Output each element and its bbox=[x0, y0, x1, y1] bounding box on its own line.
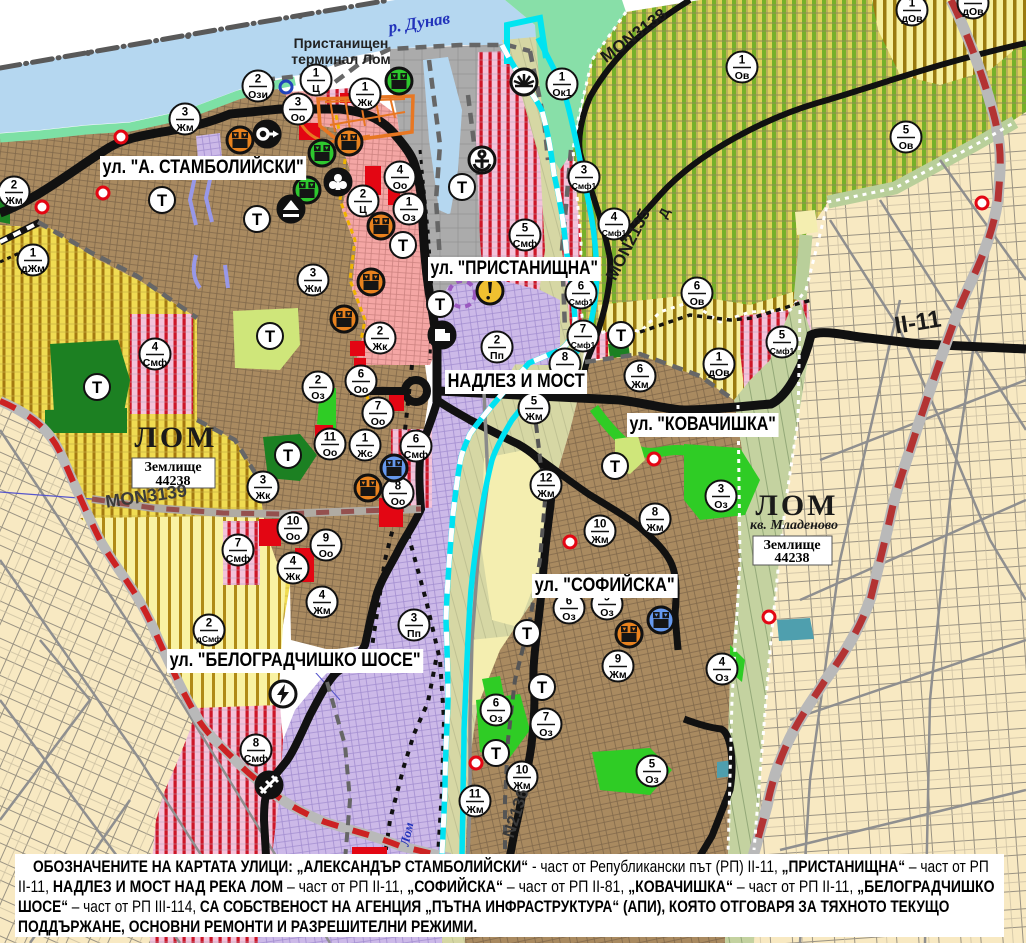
svg-text:10: 10 bbox=[516, 765, 529, 777]
svg-text:3: 3 bbox=[310, 268, 316, 280]
svg-text:7: 7 bbox=[543, 712, 549, 724]
svg-text:терминал Лом: терминал Лом bbox=[291, 51, 391, 67]
svg-text:дОв: дОв bbox=[901, 13, 923, 25]
svg-text:5: 5 bbox=[903, 125, 910, 137]
svg-text:5: 5 bbox=[779, 330, 786, 342]
svg-text:Жм: Жм bbox=[608, 669, 626, 681]
svg-text:2: 2 bbox=[377, 326, 383, 338]
svg-text:Оо: Оо bbox=[291, 112, 306, 124]
svg-text:Оо: Оо bbox=[323, 447, 338, 459]
svg-text:Оо: Оо bbox=[391, 496, 406, 508]
svg-text:ЛОМ: ЛОМ bbox=[134, 421, 217, 454]
svg-text:1: 1 bbox=[559, 72, 566, 84]
svg-text:Жс: Жс bbox=[356, 448, 372, 460]
svg-text:3: 3 bbox=[718, 484, 724, 496]
svg-text:10: 10 bbox=[287, 516, 300, 528]
svg-text:5: 5 bbox=[649, 759, 656, 771]
svg-text:Ози: Ози bbox=[248, 89, 268, 101]
svg-text:Т: Т bbox=[283, 447, 293, 465]
svg-text:Смф: Смф bbox=[226, 553, 250, 565]
svg-text:Жм: Жм bbox=[465, 804, 483, 816]
svg-text:1: 1 bbox=[406, 197, 413, 209]
svg-text:1: 1 bbox=[30, 248, 37, 260]
svg-text:дСмф: дСмф bbox=[196, 634, 222, 644]
svg-text:1: 1 bbox=[970, 0, 977, 3]
svg-text:10: 10 bbox=[594, 519, 607, 531]
svg-text:Т: Т bbox=[491, 745, 501, 763]
svg-text:3: 3 bbox=[260, 475, 266, 487]
svg-text:Жм: Жм bbox=[590, 534, 608, 546]
svg-text:4: 4 bbox=[152, 342, 159, 354]
svg-text:4: 4 bbox=[290, 556, 297, 568]
svg-text:6: 6 bbox=[413, 434, 419, 446]
svg-text:Жк: Жк bbox=[357, 97, 373, 109]
svg-text:Пп: Пп bbox=[490, 350, 504, 362]
svg-text:2: 2 bbox=[206, 618, 212, 630]
svg-text:11: 11 bbox=[324, 432, 337, 444]
svg-text:Жк: Жк bbox=[372, 341, 388, 353]
svg-text:Т: Т bbox=[616, 327, 626, 345]
svg-text:Ов: Ов bbox=[899, 140, 914, 152]
svg-text:2: 2 bbox=[494, 335, 500, 347]
svg-text:Ц: Ц bbox=[312, 83, 320, 95]
svg-text:Жк: Жк bbox=[255, 490, 271, 502]
svg-text:4: 4 bbox=[719, 657, 726, 669]
svg-text:3: 3 bbox=[182, 107, 188, 119]
svg-text:Землище: Землище bbox=[144, 460, 201, 475]
svg-text:7: 7 bbox=[375, 401, 381, 413]
svg-text:Оз: Оз bbox=[715, 672, 728, 684]
svg-text:Т: Т bbox=[610, 458, 620, 476]
svg-text:дОв: дОв bbox=[962, 6, 984, 18]
svg-text:4: 4 bbox=[397, 165, 404, 177]
svg-text:8: 8 bbox=[562, 352, 569, 364]
svg-text:3: 3 bbox=[411, 613, 417, 625]
svg-text:Смф1: Смф1 bbox=[572, 181, 597, 191]
svg-text:2: 2 bbox=[255, 74, 261, 86]
svg-text:Смф: Смф bbox=[404, 449, 428, 461]
svg-text:6: 6 bbox=[694, 281, 700, 293]
svg-text:Смф: Смф bbox=[513, 238, 537, 250]
svg-text:9: 9 bbox=[323, 533, 329, 545]
svg-text:Т: Т bbox=[92, 379, 102, 397]
svg-text:5: 5 bbox=[531, 396, 538, 408]
svg-text:Т: Т bbox=[457, 179, 467, 197]
svg-text:12: 12 bbox=[540, 473, 553, 485]
svg-text:Оо: Оо bbox=[393, 180, 408, 192]
svg-text:Жм: Жм bbox=[524, 411, 542, 423]
svg-text:3: 3 bbox=[295, 97, 301, 109]
svg-text:Пп: Пп bbox=[407, 628, 421, 640]
svg-text:6: 6 bbox=[637, 364, 643, 376]
svg-text:1: 1 bbox=[909, 0, 916, 10]
svg-text:5: 5 bbox=[522, 223, 529, 235]
svg-text:Жм: Жм bbox=[536, 488, 554, 500]
svg-text:1: 1 bbox=[313, 68, 320, 80]
svg-text:Оо: Оо bbox=[371, 416, 386, 428]
svg-text:4: 4 bbox=[611, 212, 618, 224]
svg-text:Ов: Ов bbox=[735, 70, 750, 82]
svg-text:Оз: Оз bbox=[562, 611, 575, 623]
svg-text:Т: Т bbox=[435, 296, 445, 314]
svg-text:Оо: Оо bbox=[319, 548, 334, 560]
svg-text:Пристанищен: Пристанищен bbox=[294, 35, 389, 51]
svg-text:Оо: Оо bbox=[354, 384, 369, 396]
svg-text:Оз: Оз bbox=[714, 499, 727, 511]
svg-text:Т: Т bbox=[265, 328, 275, 346]
svg-text:Ов: Ов bbox=[690, 296, 705, 308]
svg-text:Ц: Ц bbox=[359, 204, 367, 216]
svg-text:Смф: Смф bbox=[244, 753, 268, 765]
svg-text:8: 8 bbox=[652, 507, 659, 519]
svg-text:Т: Т bbox=[252, 211, 262, 229]
svg-text:4: 4 bbox=[319, 590, 326, 602]
svg-text:Смф: Смф bbox=[143, 357, 167, 369]
svg-text:кв. Младеново: кв. Младеново bbox=[750, 518, 838, 533]
svg-text:7: 7 bbox=[235, 538, 241, 550]
svg-text:6: 6 bbox=[358, 369, 364, 381]
svg-text:1: 1 bbox=[716, 352, 723, 364]
svg-text:Жм: Жм bbox=[630, 379, 648, 391]
svg-text:Смф1: Смф1 bbox=[770, 346, 795, 356]
svg-text:2: 2 bbox=[11, 180, 17, 192]
svg-text:Т: Т bbox=[398, 237, 408, 255]
svg-text:7: 7 bbox=[580, 324, 586, 336]
svg-text:Смф1: Смф1 bbox=[571, 340, 596, 350]
svg-text:2: 2 bbox=[315, 375, 321, 387]
svg-text:Оз: Оз bbox=[311, 390, 324, 402]
svg-text:1: 1 bbox=[739, 55, 746, 67]
svg-text:1: 1 bbox=[362, 82, 369, 94]
svg-text:2: 2 bbox=[360, 189, 366, 201]
svg-text:дОв: дОв bbox=[708, 367, 730, 379]
svg-text:Т: Т bbox=[537, 679, 547, 697]
svg-text:Оз: Оз bbox=[600, 607, 613, 619]
svg-text:1: 1 bbox=[362, 433, 369, 445]
svg-text:Жк: Жк bbox=[285, 571, 301, 583]
svg-text:Жм: Жм bbox=[312, 605, 330, 617]
svg-text:6: 6 bbox=[578, 281, 584, 293]
svg-text:Оз: Оз bbox=[645, 774, 658, 786]
svg-text:дЖм: дЖм bbox=[21, 263, 45, 275]
svg-text:Жм: Жм bbox=[4, 195, 22, 207]
svg-text:3: 3 bbox=[581, 165, 587, 177]
svg-text:Т: Т bbox=[157, 192, 167, 210]
svg-text:Ок1: Ок1 bbox=[552, 87, 571, 99]
svg-text:Оз: Оз bbox=[402, 212, 415, 224]
svg-text:Оо: Оо bbox=[286, 531, 301, 543]
svg-text:11: 11 bbox=[469, 789, 482, 801]
svg-text:Оз: Оз bbox=[489, 713, 502, 725]
svg-text:44238: 44238 bbox=[775, 551, 810, 566]
svg-text:Жм: Жм bbox=[303, 283, 321, 295]
svg-text:Т: Т bbox=[522, 625, 532, 643]
svg-text:8: 8 bbox=[253, 738, 260, 750]
svg-text:9: 9 bbox=[615, 654, 621, 666]
svg-text:Оз: Оз bbox=[539, 727, 552, 739]
svg-text:Жм: Жм bbox=[175, 122, 193, 134]
svg-text:Жм: Жм bbox=[645, 522, 663, 534]
svg-text:Смф1: Смф1 bbox=[569, 297, 594, 307]
svg-text:6: 6 bbox=[493, 698, 499, 710]
